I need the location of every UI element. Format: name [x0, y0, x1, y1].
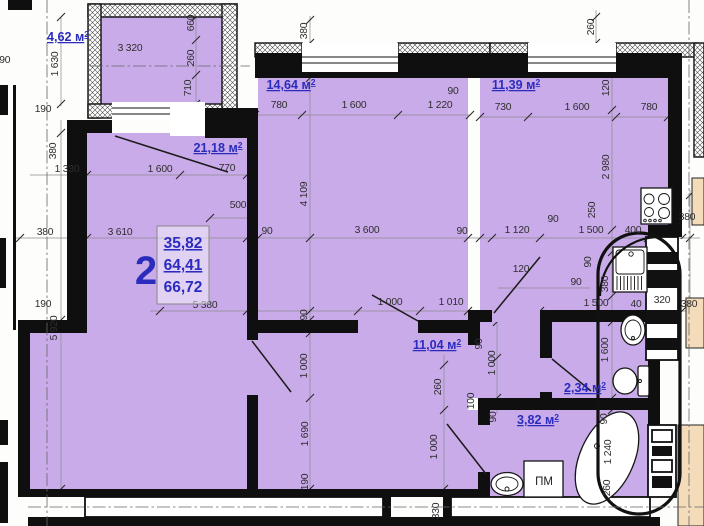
dimension-label: 1 630 [50, 51, 61, 76]
dimension-label: 90 [583, 256, 594, 268]
dimension-label: 1 120 [505, 225, 530, 236]
dimension-label: 260 [186, 49, 197, 66]
door-stub [383, 493, 391, 517]
dimension-label: 250 [587, 201, 598, 218]
shaft-cell [652, 460, 672, 472]
wall-wc-bath [478, 398, 650, 410]
dimension-label: 380 [37, 227, 54, 238]
shaft-block [652, 476, 672, 488]
wc-door-opening [540, 358, 552, 392]
wall-below-strip [28, 517, 660, 526]
dimension-label: 1 500 [579, 225, 604, 236]
dimension-label: 3 600 [355, 225, 380, 236]
room-fills [30, 17, 668, 497]
dimension-label: 1 330 [55, 164, 80, 175]
stair-wall-fragment [0, 420, 8, 445]
shaft-cell [652, 430, 672, 442]
dimension-label: 90 [261, 226, 273, 237]
wall-bottom [30, 489, 478, 497]
dimension-label: 190 [300, 473, 311, 490]
door-stub [443, 493, 451, 517]
stamp-living-area: 35,82 [164, 235, 203, 252]
dimension-label: 3 320 [118, 43, 143, 54]
dimension-label: 380 [679, 212, 696, 223]
dimension-label: 1 000 [429, 434, 440, 459]
dimension-label: 1 690 [300, 421, 311, 446]
kitchen-door-opening [492, 310, 540, 322]
dimension-label: 780 [271, 100, 288, 111]
wall-bedroom-hall-2 [418, 320, 468, 333]
dimension-label: 120 [513, 264, 530, 275]
living-door-opening [247, 340, 258, 395]
dimension-label: 90 [299, 309, 310, 321]
stamp-total-area: 66,72 [164, 279, 203, 296]
dimension-label: 730 [495, 102, 512, 113]
wall-wc-left-stub [540, 392, 552, 398]
dimension-label: 40 [630, 299, 642, 310]
dimension-label: 90 [456, 226, 468, 237]
stair-wall-fragment [0, 238, 6, 288]
washing-machine-label: ПМ [535, 476, 553, 488]
dimension-label: 260 [586, 18, 597, 35]
wall-lintel [255, 72, 682, 78]
dimension-label: 4 109 [299, 181, 310, 206]
dimension-label: 90 [488, 411, 499, 423]
dimension-label: 1 000 [487, 350, 498, 375]
bedroom-door-opening [358, 320, 418, 333]
dimension-label: 120 [601, 79, 612, 96]
stair-wall-fragment [8, 0, 32, 10]
dimension-label: 100 [466, 392, 477, 409]
dimension-label: 90 [547, 214, 559, 225]
dimension-label: 380 [48, 142, 59, 159]
dimension-label: 260 [433, 378, 444, 395]
room-bedroom-fill [258, 78, 468, 320]
dimension-label: 1 010 [439, 297, 464, 308]
dimension-label: 320 [654, 295, 671, 306]
room-area-hall: 11,04 м2 [413, 337, 462, 352]
bath-sink-icon [491, 473, 523, 496]
balcony-wall-left [88, 4, 101, 118]
dimension-label: 5 920 [49, 315, 60, 340]
floor-plan-page: ПМ 3 3201 6306602607101901903807801 6001… [0, 0, 704, 526]
shaft-block [652, 446, 672, 456]
dimension-label: 660 [186, 14, 197, 31]
dimension-label: 330 [431, 502, 442, 519]
dimension-label: 90 [570, 277, 582, 288]
dimension-label: 1 000 [378, 297, 403, 308]
dimension-label: 1 600 [342, 100, 367, 111]
dimension-label: 2 980 [601, 154, 612, 179]
dimension-label: 400 [625, 225, 642, 236]
stamp-apartment-area: 64,41 [164, 257, 203, 274]
dimension-label: 90 [474, 338, 485, 350]
room-area-living: 21,18 м2 [193, 140, 242, 155]
dimension-label: 1 600 [565, 102, 590, 113]
wall-living-top [67, 120, 112, 133]
wall-left-lower [18, 330, 30, 497]
dimension-label: 500 [230, 200, 247, 211]
balcony-door-gap [170, 102, 205, 136]
balcony-window-gap [112, 102, 170, 120]
dimension-label: 190 [35, 104, 52, 115]
wall-chunk [205, 108, 258, 138]
balcony-wall-top [88, 4, 237, 17]
shaft-block [646, 338, 678, 350]
dimension-label: 260 [602, 479, 613, 496]
room-area-bedroom: 14,64 м2 [266, 77, 315, 92]
wc-basin-icon [621, 315, 645, 345]
corridor-gap-fill [468, 345, 480, 398]
floor-plan-drawing: ПМ 3 3201 6306602607101901903807801 6001… [0, 0, 704, 526]
dimension-label: 3 610 [108, 227, 133, 238]
room-balcony-fill [101, 17, 222, 104]
dimension-label: 380 [600, 275, 611, 292]
dimension-label: 380 [681, 299, 698, 310]
wall-living-hall [247, 395, 258, 489]
stamp-flat-number: 2 [135, 249, 157, 293]
shaft-block [646, 310, 678, 324]
stair-wall-fragment [0, 462, 8, 523]
room-area-bath: 3,82 м2 [517, 412, 559, 427]
room-area-balcony: 4,62 м2 [47, 29, 89, 44]
dimension-label: 380 [299, 22, 310, 39]
dimension-label: 190 [0, 55, 11, 66]
dimension-label: 770 [219, 163, 236, 174]
adjacent-unit-fill [678, 425, 704, 526]
toilet-icon [613, 366, 649, 396]
stair-wall-line [13, 85, 16, 330]
dimension-label: 90 [599, 413, 610, 425]
dimension-label: 780 [641, 102, 658, 113]
wall-living-bedroom [247, 138, 258, 340]
dimension-label: 1 220 [428, 100, 453, 111]
wall-bedroom-hall-1 [247, 320, 358, 333]
washing-machine-icon: ПМ [524, 461, 563, 497]
dimension-label: 190 [35, 299, 52, 310]
wall-wc-left [540, 322, 552, 358]
room-area-kitchen: 11,39 м2 [492, 77, 541, 92]
dimension-label: 90 [447, 86, 459, 97]
wall-left-upper [67, 120, 87, 333]
dimension-label: 1 240 [603, 439, 614, 464]
dimension-label: 1 600 [600, 337, 611, 362]
stove-icon [641, 188, 672, 224]
wall-kitchen-bottom-1 [468, 310, 492, 322]
room-area-wc: 2,34 м2 [564, 380, 606, 395]
shaft-block [646, 270, 678, 288]
balcony-wall-right [222, 4, 237, 118]
right-wall-hatch [694, 43, 704, 157]
dimension-label: 1 000 [299, 353, 310, 378]
dimension-label: 1 600 [148, 164, 173, 175]
dimension-label: 710 [183, 79, 194, 96]
stair-wall-fragment [0, 85, 8, 115]
dimension-label: 1 500 [584, 298, 609, 309]
wall-bath-left-bottom [478, 472, 490, 497]
